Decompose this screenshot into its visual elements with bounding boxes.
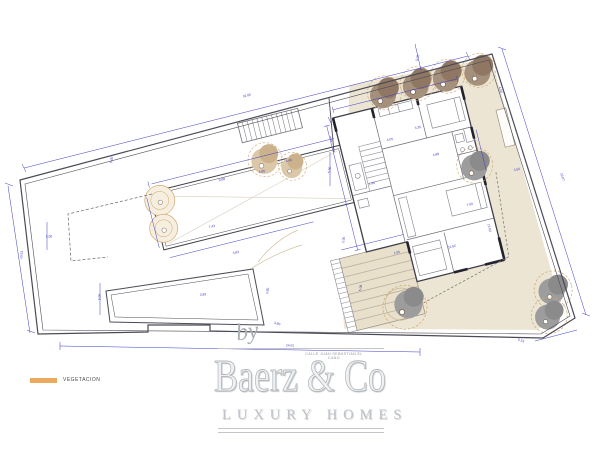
brand-rule-top: [218, 348, 384, 349]
brand-rule-bottom-2: [218, 432, 384, 433]
brand-by: by: [234, 318, 260, 348]
garden-curves: [252, 230, 302, 268]
legend-label: VEGETACION: [63, 377, 100, 383]
legend-swatch: [30, 378, 57, 383]
brand-rule-bottom-1: [218, 428, 384, 429]
vegetation-legend: VEGETACION: [30, 377, 100, 383]
brand-tagline: LUXURY HOMES: [216, 407, 388, 424]
pool-outline: [106, 269, 264, 325]
floor-plan-page: 32.605.0010.535.005.0024.815.2319.0713.6…: [0, 0, 600, 451]
brand-name: Baerz & Co: [214, 351, 386, 401]
setback-dashed-line: [68, 194, 152, 261]
